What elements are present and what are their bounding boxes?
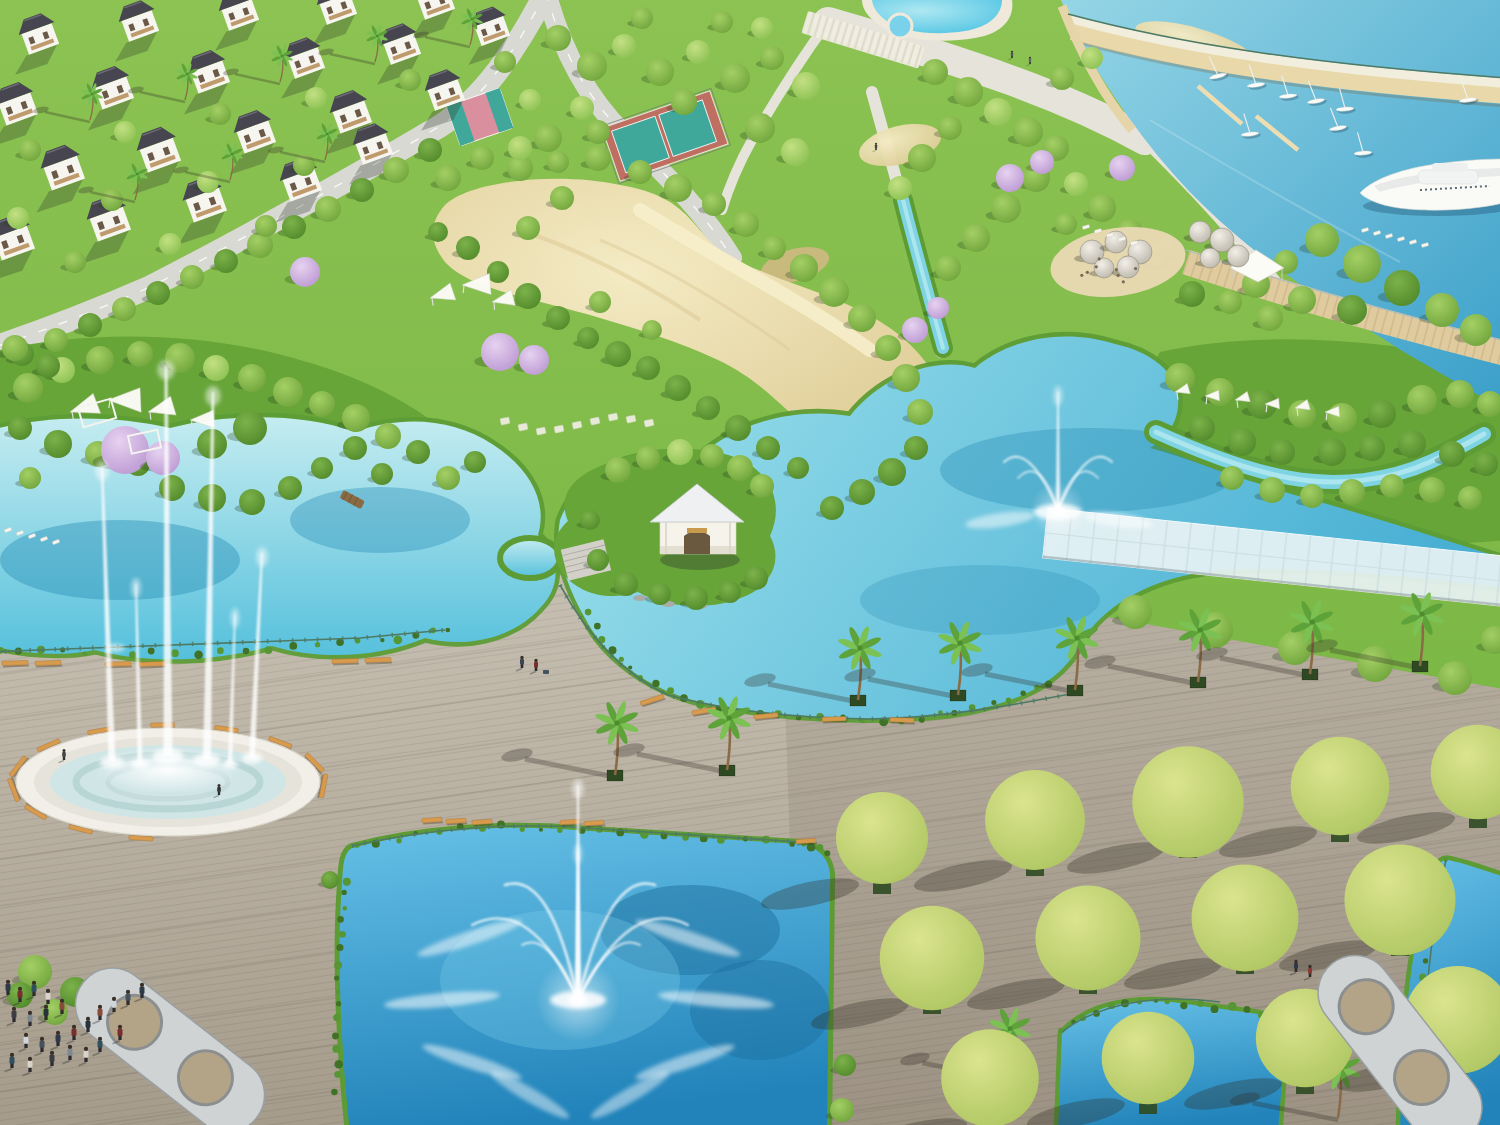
tree-canopy xyxy=(1474,452,1498,476)
person-head xyxy=(72,1025,76,1029)
person-body xyxy=(217,787,221,792)
person-head xyxy=(1011,51,1013,53)
tree-canopy xyxy=(239,489,265,515)
tree-canopy xyxy=(305,87,327,109)
tree-canopy xyxy=(78,313,102,337)
tree-canopy xyxy=(1179,281,1205,307)
person-legs xyxy=(28,1021,31,1026)
tree-canopy xyxy=(290,257,320,287)
grass-tuft xyxy=(336,1001,341,1006)
tree-canopy xyxy=(1206,378,1234,406)
grass-tuft xyxy=(343,878,351,886)
person-head xyxy=(126,990,130,994)
tree-canopy xyxy=(585,145,611,171)
person-head xyxy=(28,1057,32,1061)
grass-tuft xyxy=(337,916,344,923)
person-head xyxy=(534,659,537,662)
tree-canopy xyxy=(238,364,266,392)
tree-canopy xyxy=(1132,746,1243,857)
cafe-table xyxy=(1080,274,1083,277)
tree-canopy xyxy=(762,236,786,260)
tree-canopy xyxy=(203,355,229,381)
tree-canopy xyxy=(19,467,41,489)
tree-canopy xyxy=(787,457,809,479)
tree-canopy xyxy=(1088,194,1116,222)
tree-canopy xyxy=(1013,117,1043,147)
tree-canopy xyxy=(112,297,136,321)
tree-canopy xyxy=(418,138,442,162)
tree-canopy xyxy=(819,277,849,307)
person-legs xyxy=(68,1055,71,1060)
palm-crown xyxy=(376,35,379,38)
tree-canopy xyxy=(1344,844,1455,955)
tree-canopy xyxy=(1220,466,1244,490)
tree-canopy xyxy=(908,144,936,172)
tree-canopy xyxy=(101,189,123,211)
person-body xyxy=(46,993,51,1000)
person-body xyxy=(24,1037,29,1044)
tree-canopy xyxy=(1425,293,1459,327)
grass-tuft xyxy=(334,975,339,980)
tree-canopy xyxy=(547,151,569,173)
tree-canopy xyxy=(580,510,600,530)
grass-tuft xyxy=(594,623,601,630)
person-head xyxy=(44,1005,48,1009)
grass-tuft xyxy=(1197,1000,1204,1007)
dome-top xyxy=(1189,221,1211,243)
person-body xyxy=(6,984,11,991)
tree-canopy xyxy=(550,186,574,210)
grass-tuft xyxy=(1180,1002,1187,1009)
person-legs xyxy=(98,1015,101,1020)
bench-seat xyxy=(139,661,165,666)
grass-tuft xyxy=(520,827,525,832)
cafe-table xyxy=(1117,274,1120,277)
tree-canopy xyxy=(1359,435,1385,461)
tree-canopy xyxy=(315,196,341,222)
tree-canopy xyxy=(700,444,724,468)
tree-canopy xyxy=(399,69,421,91)
person-legs xyxy=(1309,973,1312,977)
person-head xyxy=(217,784,220,787)
yacht-superstructure xyxy=(1418,170,1478,184)
person-legs xyxy=(126,1000,129,1005)
bench-seat xyxy=(822,716,846,721)
tree-canopy xyxy=(1288,286,1316,314)
grass-tuft xyxy=(148,648,155,655)
tree-canopy xyxy=(587,549,609,571)
bench xyxy=(822,716,847,723)
tree-canopy xyxy=(927,297,949,319)
person-body xyxy=(44,1009,49,1016)
tree-canopy xyxy=(516,216,540,240)
person-legs xyxy=(1295,968,1298,972)
person-head xyxy=(56,1031,60,1035)
person-head xyxy=(98,1037,102,1041)
tree-canopy xyxy=(86,346,114,374)
palm-crown xyxy=(726,715,731,720)
palm-crown xyxy=(857,645,862,650)
tree-canopy xyxy=(649,583,671,605)
tree-canopy xyxy=(904,436,928,460)
grass-tuft xyxy=(331,1089,337,1095)
tree-canopy xyxy=(733,211,759,237)
tree-canopy xyxy=(834,1054,856,1076)
water-depth xyxy=(290,487,470,553)
person-body xyxy=(534,662,538,668)
tree-canopy xyxy=(577,51,607,81)
person-legs xyxy=(60,1009,63,1014)
scene-canvas xyxy=(0,0,1500,1125)
person-head xyxy=(6,980,10,984)
tree-canopy xyxy=(534,124,562,152)
person-body xyxy=(98,1009,103,1016)
person-body xyxy=(62,752,66,757)
person-head xyxy=(112,997,116,1001)
aerial-park-render xyxy=(0,0,1500,1125)
tree-canopy xyxy=(589,291,611,313)
tree-canopy xyxy=(481,333,519,371)
cafe-table xyxy=(1098,257,1101,260)
tree-canopy xyxy=(44,430,72,458)
person-body xyxy=(86,1021,91,1028)
palm-crown xyxy=(1008,1026,1013,1031)
palm-crown xyxy=(91,93,94,96)
small-spray xyxy=(105,644,125,652)
person-legs xyxy=(6,990,9,995)
person-legs xyxy=(84,1057,87,1062)
jet-spray xyxy=(205,386,220,406)
cafe-table xyxy=(1134,267,1137,270)
tree-canopy xyxy=(1218,290,1242,314)
person-head xyxy=(68,1045,72,1049)
person-legs xyxy=(56,1041,59,1046)
person-head xyxy=(520,656,523,659)
grass-tuft xyxy=(396,838,401,843)
jet-splash xyxy=(223,759,238,768)
sail-pole xyxy=(1206,396,1207,404)
tree-canopy xyxy=(1118,595,1152,629)
palm-crown xyxy=(186,73,189,76)
jet-splash xyxy=(153,749,184,764)
jet-spray xyxy=(157,360,174,380)
sail-pole xyxy=(191,420,192,428)
person-body xyxy=(84,1051,89,1058)
person-head xyxy=(24,1033,28,1037)
tree-canopy xyxy=(628,160,652,184)
person-legs xyxy=(40,1047,43,1052)
tree-canopy xyxy=(790,254,818,282)
person-head xyxy=(875,143,877,145)
palm-crown xyxy=(471,18,474,21)
tree-canopy xyxy=(935,255,961,281)
tree-canopy xyxy=(684,586,708,610)
grass-tuft xyxy=(217,647,224,654)
tree-canopy xyxy=(985,770,1085,870)
person-body xyxy=(10,1057,15,1064)
tree-canopy xyxy=(470,146,494,170)
tree-canopy xyxy=(760,46,784,70)
tree-canopy xyxy=(1327,403,1357,433)
tree-canopy xyxy=(878,458,906,486)
sail-pole xyxy=(1297,408,1298,416)
tree-canopy xyxy=(1460,314,1492,346)
tree-canopy xyxy=(744,566,768,590)
person-legs xyxy=(1011,56,1013,58)
tree-canopy xyxy=(941,1029,1039,1125)
tree-canopy xyxy=(570,96,594,120)
palm-crown xyxy=(614,720,619,725)
tree-canopy xyxy=(519,345,549,375)
tree-canopy xyxy=(7,207,29,229)
grass-tuft xyxy=(824,850,830,856)
grass-tuft xyxy=(334,961,342,969)
person-legs xyxy=(72,1035,75,1040)
jet-spray xyxy=(572,779,583,799)
palm-crown xyxy=(281,55,284,58)
tree-canopy xyxy=(508,136,532,160)
tree-canopy xyxy=(1081,47,1103,69)
jet-spray xyxy=(131,578,141,598)
grass-tuft xyxy=(1244,1006,1251,1013)
tree-canopy xyxy=(1109,155,1135,181)
tree-canopy xyxy=(487,261,509,283)
tree-canopy xyxy=(711,11,733,33)
person-body xyxy=(98,1041,103,1048)
tree-canopy xyxy=(848,304,876,332)
jet-spray xyxy=(231,608,239,628)
tree-canopy xyxy=(612,34,636,58)
grass-tuft xyxy=(332,1033,339,1040)
person-body xyxy=(40,1041,45,1048)
tree-canopy xyxy=(233,411,267,445)
grass-tuft xyxy=(315,642,320,647)
person-head xyxy=(62,749,65,752)
tree-canopy xyxy=(255,215,277,237)
tree-canopy xyxy=(880,906,984,1010)
person-legs xyxy=(50,1061,53,1066)
tree-canopy xyxy=(1337,295,1367,325)
water-depth xyxy=(860,565,1100,635)
tree-canopy xyxy=(991,193,1021,223)
grass-tuft xyxy=(343,906,348,911)
person-head xyxy=(50,1051,54,1055)
tree-canopy xyxy=(750,474,774,498)
person-legs xyxy=(44,1015,47,1020)
person-body xyxy=(875,145,877,148)
tree-canopy xyxy=(875,335,901,361)
person-legs xyxy=(18,997,21,1002)
bench-seat xyxy=(365,657,391,662)
tree-canopy xyxy=(1339,479,1365,505)
grass-tuft xyxy=(334,1071,341,1078)
tree-canopy xyxy=(309,391,335,417)
person-body xyxy=(118,1029,123,1036)
person-head xyxy=(32,981,36,985)
tree-canopy xyxy=(664,174,692,202)
tree-canopy xyxy=(350,178,374,202)
person-head xyxy=(140,983,144,987)
tree-canopy xyxy=(984,98,1012,126)
tree-canopy xyxy=(456,236,480,260)
connecting-channel xyxy=(500,538,560,578)
tree-canopy xyxy=(1050,66,1074,90)
palm-crown xyxy=(136,173,139,176)
bench xyxy=(365,657,392,664)
grass-tuft xyxy=(1020,690,1025,695)
grass-tuft xyxy=(194,650,203,659)
tree-canopy xyxy=(1269,439,1295,465)
tree-canopy xyxy=(781,138,809,166)
jet-spray xyxy=(256,547,267,567)
tree-canopy xyxy=(665,375,691,401)
tree-canopy xyxy=(159,233,181,255)
tree-canopy xyxy=(321,871,339,889)
sail-pole xyxy=(494,302,495,310)
person-body xyxy=(140,987,145,994)
sail-pole xyxy=(1266,404,1267,412)
grass-tuft xyxy=(1228,1002,1237,1011)
tree-canopy xyxy=(605,341,631,367)
dome-top xyxy=(1227,245,1249,267)
person-body xyxy=(1011,53,1013,56)
tree-canopy xyxy=(273,377,303,407)
tree-canopy xyxy=(902,317,928,343)
grass-tuft xyxy=(539,828,543,832)
tree-canopy xyxy=(962,224,990,252)
person-legs xyxy=(218,791,220,795)
tree-canopy xyxy=(19,139,41,161)
tree-canopy xyxy=(1030,150,1054,174)
bench xyxy=(139,661,166,668)
person-head xyxy=(1294,960,1297,963)
person-legs xyxy=(118,1035,121,1040)
tree-canopy xyxy=(2,335,28,361)
bench xyxy=(890,717,915,724)
grass-tuft xyxy=(619,657,624,662)
grass-tuft xyxy=(380,638,384,642)
sail-pole xyxy=(1177,392,1178,400)
grass-tuft xyxy=(171,649,179,657)
person-legs xyxy=(1029,62,1031,64)
tree-canopy xyxy=(1380,474,1404,498)
kiosk-sign xyxy=(687,528,707,533)
tree-canopy xyxy=(342,404,370,432)
grass-tuft xyxy=(332,1045,340,1053)
grass-tuft xyxy=(129,651,136,658)
person-head xyxy=(60,999,64,1003)
tree-canopy xyxy=(146,281,170,305)
tree-canopy xyxy=(146,441,180,475)
palm-crown xyxy=(1197,627,1202,632)
grass-tuft xyxy=(585,609,592,616)
tree-canopy xyxy=(1305,223,1339,257)
tree-canopy xyxy=(1291,737,1390,836)
tree-canopy xyxy=(938,116,962,140)
tree-canopy xyxy=(888,176,912,200)
tree-canopy xyxy=(720,63,750,93)
tree-canopy xyxy=(1192,865,1299,972)
grass-tuft xyxy=(445,628,450,633)
person-body xyxy=(28,1061,33,1068)
tree-canopy xyxy=(1368,400,1396,428)
person-head xyxy=(40,1037,44,1041)
person-legs xyxy=(98,1047,101,1052)
tree-canopy xyxy=(406,440,430,464)
tree-canopy xyxy=(636,446,660,470)
tree-canopy xyxy=(36,354,60,378)
tree-canopy xyxy=(830,1098,854,1122)
tree-canopy xyxy=(849,479,875,505)
tree-canopy xyxy=(13,373,43,403)
tree-canopy xyxy=(1228,428,1256,456)
tree-canopy xyxy=(214,249,238,273)
person-legs xyxy=(46,999,49,1004)
person-body xyxy=(68,1049,73,1056)
grass-tuft xyxy=(243,648,249,654)
person-head xyxy=(46,989,50,993)
jet-splash xyxy=(100,756,124,768)
grass-tuft xyxy=(557,828,562,833)
grass-tuft xyxy=(83,651,87,655)
tree-canopy xyxy=(311,457,333,479)
kiosk-arch xyxy=(684,531,710,554)
tree-canopy xyxy=(646,58,674,86)
person-legs xyxy=(12,1017,15,1022)
tree-canopy xyxy=(642,320,662,340)
tree-canopy xyxy=(702,192,726,216)
person-head xyxy=(98,1005,102,1009)
tree-canopy xyxy=(922,59,948,85)
tree-canopy xyxy=(1300,484,1324,508)
tree-canopy xyxy=(278,476,302,500)
tree-canopy xyxy=(671,89,697,115)
tree-canopy xyxy=(127,341,153,367)
person-legs xyxy=(28,1067,31,1072)
tree-canopy xyxy=(383,157,409,183)
grass-tuft xyxy=(1006,697,1012,703)
person-body xyxy=(28,1015,33,1022)
grass-tuft xyxy=(336,944,343,951)
tree-canopy xyxy=(756,436,780,460)
tree-canopy xyxy=(545,25,571,51)
bench-seat xyxy=(332,658,358,663)
fountain-splash xyxy=(550,991,606,1009)
tree-canopy xyxy=(751,17,773,39)
tree-canopy xyxy=(1318,438,1346,466)
tree-canopy xyxy=(1398,430,1426,458)
cafe-table xyxy=(1086,271,1089,274)
person-body xyxy=(1308,968,1312,974)
tree-canopy xyxy=(159,475,185,501)
tree-canopy xyxy=(1257,305,1283,331)
person-legs xyxy=(32,991,35,996)
person-body xyxy=(1029,59,1031,62)
tree-canopy xyxy=(64,251,86,273)
grass-tuft xyxy=(341,890,346,895)
dome-top xyxy=(1117,256,1139,278)
tree-canopy xyxy=(577,327,599,349)
fountain-splash xyxy=(1034,504,1082,520)
person-legs xyxy=(10,1063,13,1068)
tree-canopy xyxy=(696,396,720,420)
person-head xyxy=(86,1017,90,1021)
grass-tuft xyxy=(991,700,996,705)
cafe-table xyxy=(1122,280,1125,283)
sail-pole xyxy=(463,285,464,293)
palm-crown xyxy=(1419,611,1424,616)
person-body xyxy=(56,1035,61,1042)
